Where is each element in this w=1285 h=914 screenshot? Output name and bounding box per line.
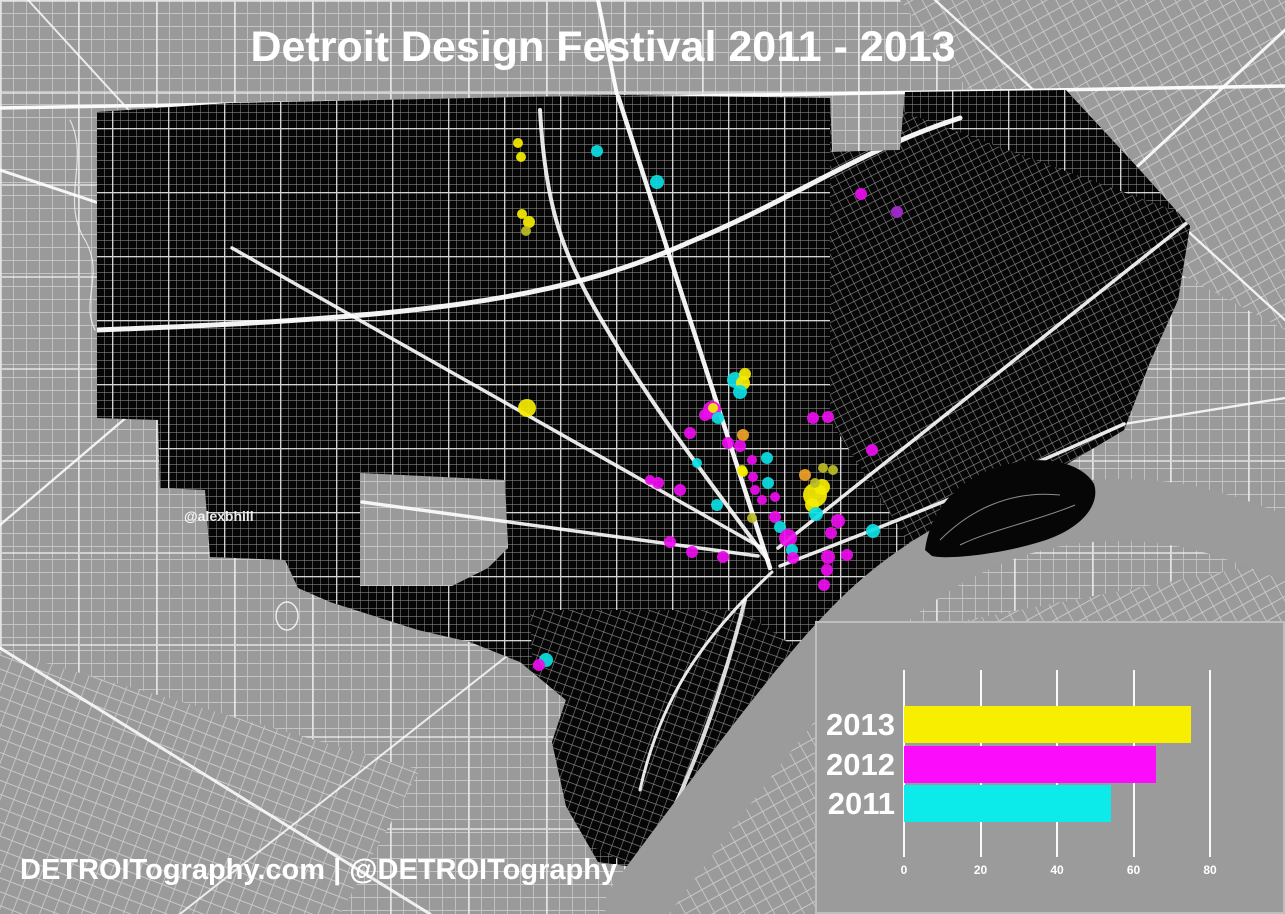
year-label-2012: 2012 <box>817 746 895 783</box>
event-dot-olive <box>810 478 820 488</box>
event-dot-yellow <box>513 138 523 148</box>
event-dot-magenta <box>750 485 760 495</box>
event-dot-magenta <box>734 440 746 452</box>
event-dot-magenta <box>787 552 799 564</box>
event-dot-yellow <box>516 152 526 162</box>
event-dot-magenta <box>722 437 734 449</box>
event-dot-cyan <box>733 385 747 399</box>
event-dot-magenta <box>664 536 676 548</box>
event-dot-magenta <box>770 492 780 502</box>
event-dot-magenta <box>674 484 686 496</box>
event-dot-magenta <box>748 472 758 482</box>
event-dot-magenta <box>645 475 655 485</box>
event-dot-magenta <box>684 427 696 439</box>
event-dot-cyan <box>712 412 724 424</box>
bar-2012 <box>904 746 1156 783</box>
event-dot-magenta <box>841 549 853 561</box>
event-dot-cyan <box>761 452 773 464</box>
event-dot-olive <box>521 226 531 236</box>
event-dot-magenta <box>747 455 757 465</box>
event-dot-yellow <box>518 399 536 417</box>
year-label-2013: 2013 <box>817 706 895 743</box>
year-label-2011: 2011 <box>817 785 895 822</box>
event-dot-yellow <box>739 368 751 380</box>
bar-2011 <box>904 785 1111 822</box>
event-dot-magenta <box>825 527 837 539</box>
map-canvas: Detroit Design Festival 2011 - 2013 @ale… <box>0 0 1285 914</box>
event-dot-magenta <box>821 564 833 576</box>
bar-2013 <box>904 706 1191 743</box>
event-dot-olive <box>747 513 757 523</box>
event-dot-cyan <box>692 458 702 468</box>
event-dot-cyan <box>809 507 823 521</box>
event-dot-magenta <box>699 409 711 421</box>
map-title: Detroit Design Festival 2011 - 2013 <box>0 26 1206 69</box>
event-dot-magenta <box>866 444 878 456</box>
event-dot-orange <box>737 429 749 441</box>
event-dot-cyan <box>762 477 774 489</box>
event-dot-magenta <box>717 551 729 563</box>
event-dot-yellow <box>738 467 748 477</box>
event-dot-magenta <box>855 188 867 200</box>
event-dot-magenta <box>779 529 797 547</box>
event-dot-magenta <box>822 411 834 423</box>
event-dot-purple <box>891 206 903 218</box>
event-dot-magenta <box>821 550 835 564</box>
year-bar-chart: 201320122011 020406080 <box>815 621 1285 914</box>
event-dot-cyan <box>650 175 664 189</box>
event-dot-olive <box>828 465 838 475</box>
x-tick-80: 80 <box>1190 863 1230 877</box>
event-dot-magenta <box>831 514 845 528</box>
dearborn-enclave <box>360 473 508 586</box>
event-dot-magenta <box>818 579 830 591</box>
x-tick-40: 40 <box>1037 863 1077 877</box>
gridline-80 <box>1209 670 1211 857</box>
event-dot-magenta <box>807 412 819 424</box>
attribution-footer: DETROITography.com | @DETROITography <box>20 856 617 885</box>
x-tick-0: 0 <box>884 863 924 877</box>
x-tick-60: 60 <box>1114 863 1154 877</box>
event-dot-orange <box>799 469 811 481</box>
event-dot-olive <box>818 463 828 473</box>
event-dot-magenta <box>757 495 767 505</box>
event-dot-magenta <box>533 659 545 671</box>
event-dot-cyan <box>591 145 603 157</box>
event-dot-cyan <box>866 524 880 538</box>
author-watermark: @alexbhill <box>184 509 254 523</box>
event-dot-cyan <box>711 499 723 511</box>
event-dot-magenta <box>686 546 698 558</box>
x-tick-20: 20 <box>961 863 1001 877</box>
